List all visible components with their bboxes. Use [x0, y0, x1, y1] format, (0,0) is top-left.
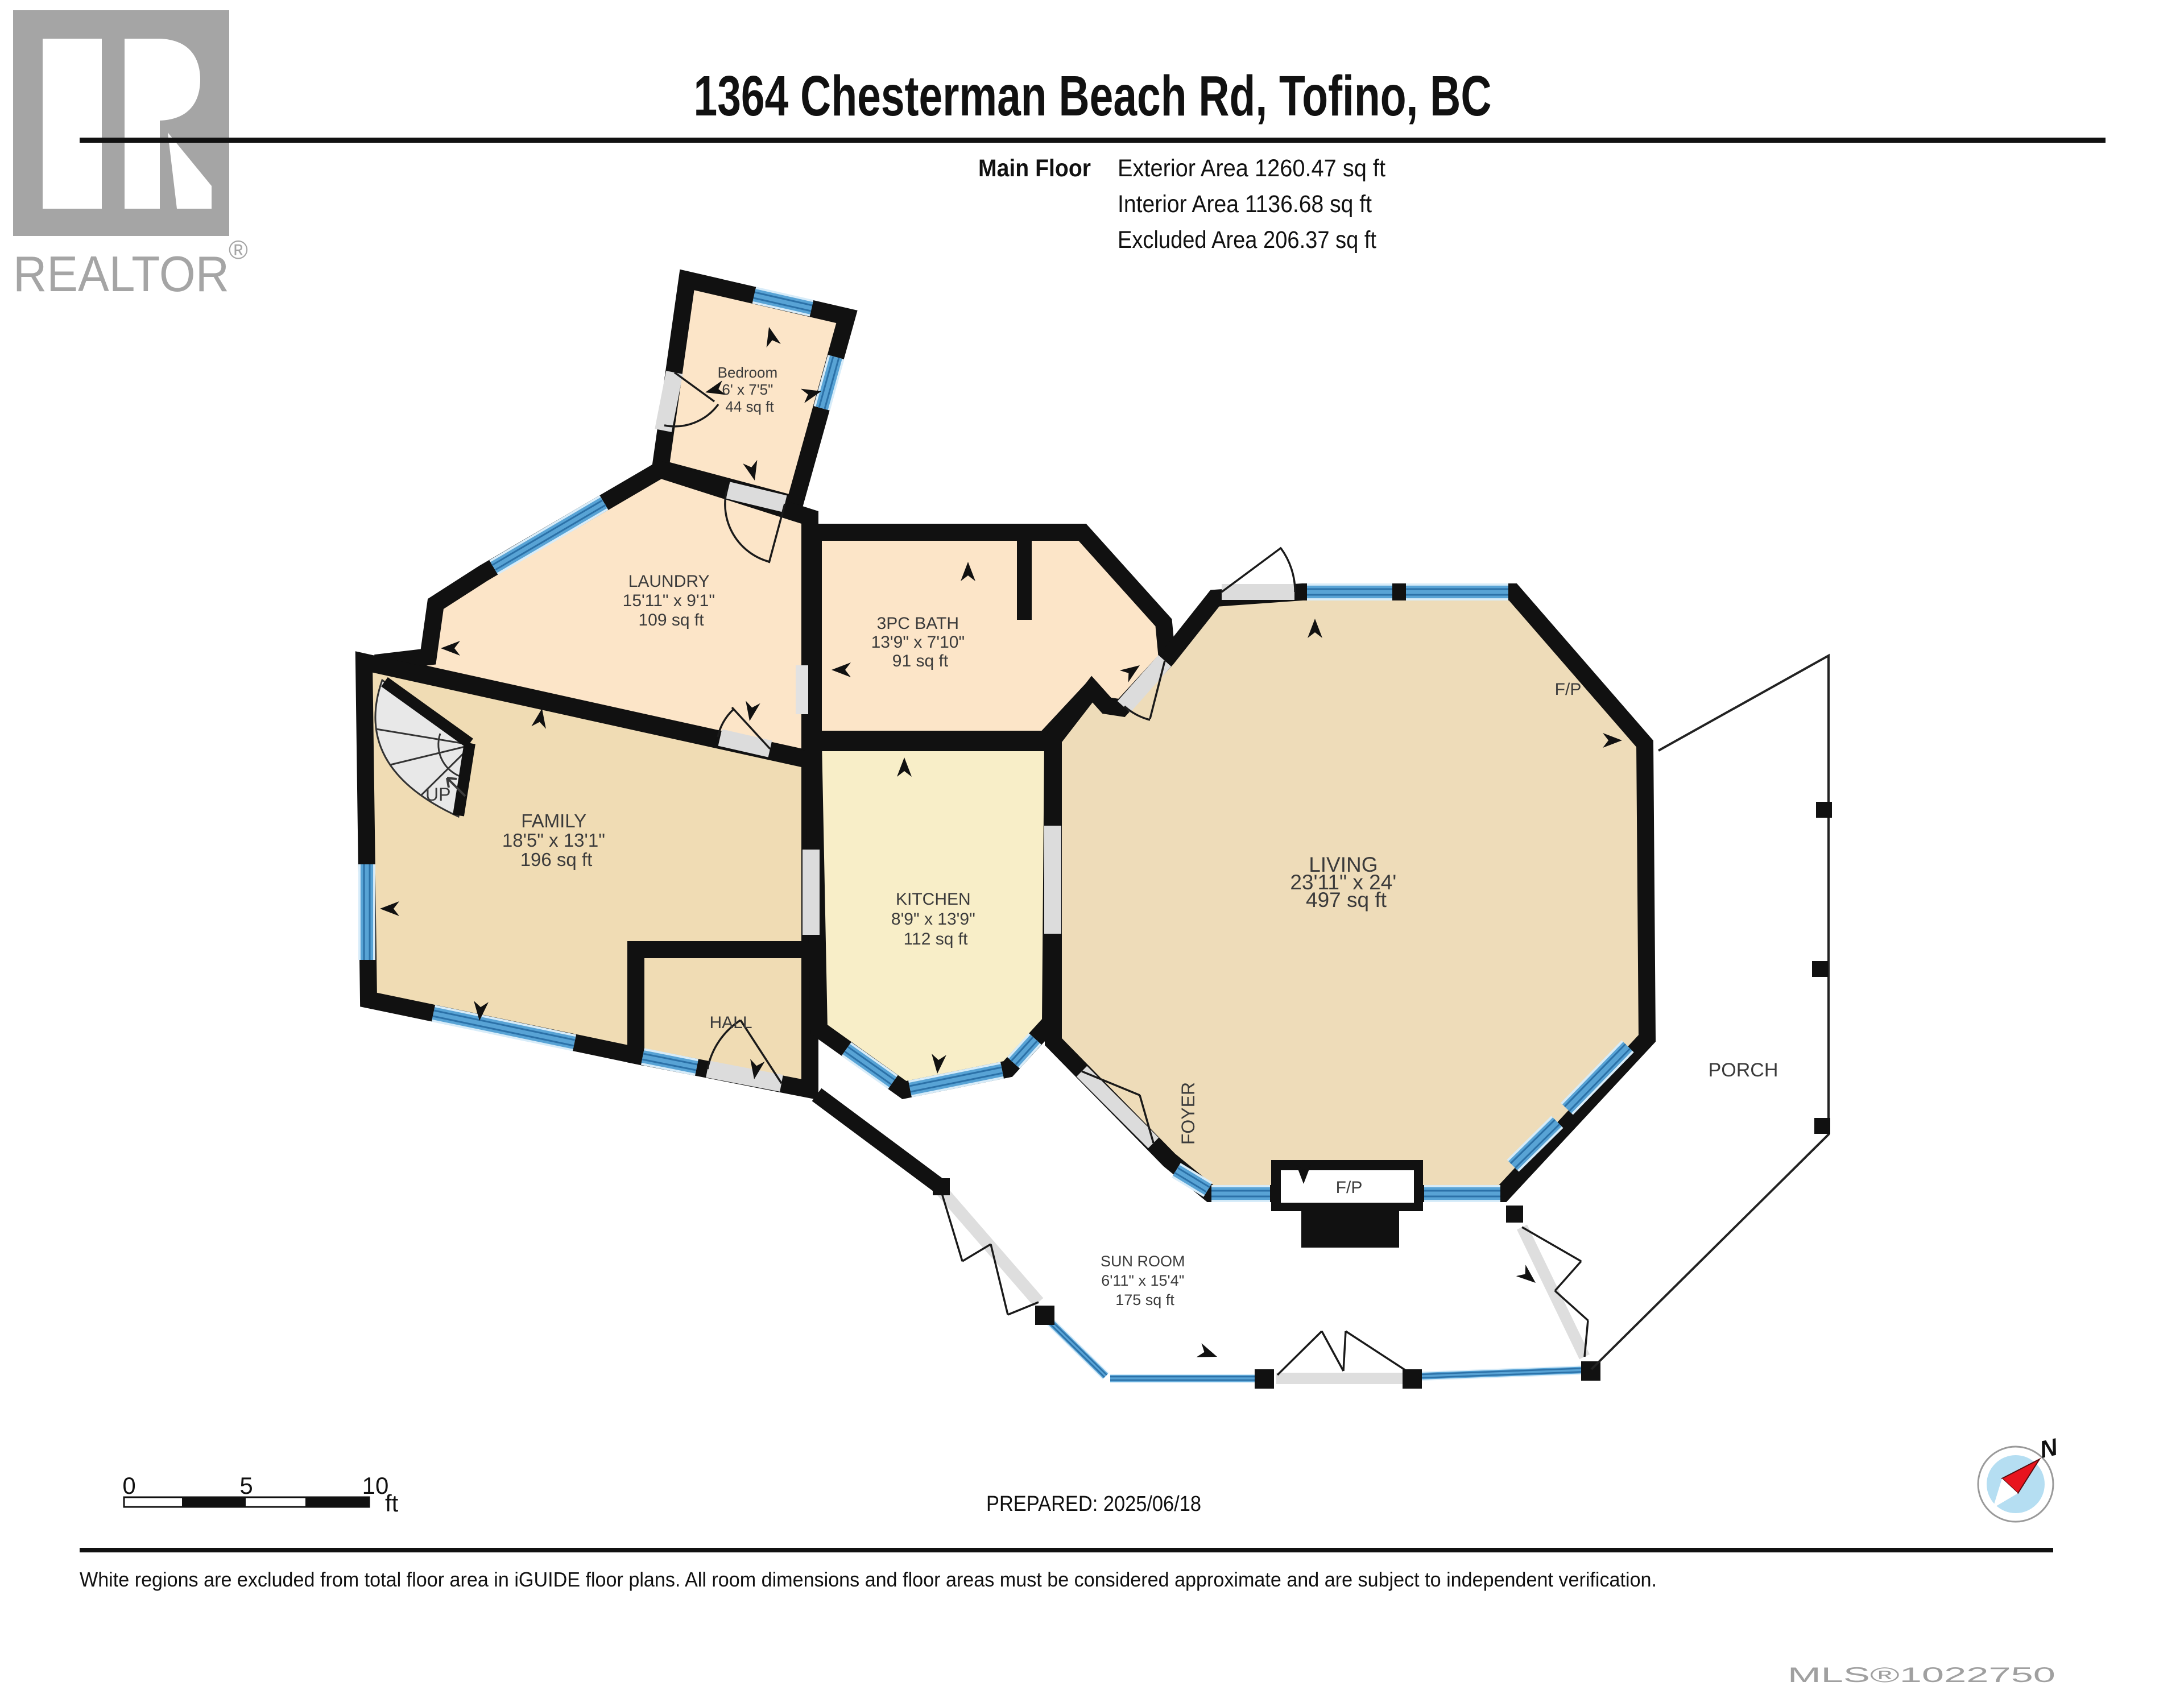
svg-text:MLS®1022750: MLS®1022750	[1788, 1663, 2055, 1687]
svg-text:®: ®	[229, 235, 248, 264]
svg-text:SUN ROOM 6'11" x 15'4" 175 sq: SUN ROOM 6'11" x 15'4" 175 sq ft	[1101, 1253, 1189, 1308]
svg-text:KITCHEN 8'9" x 13'9" 112 sq ft: KITCHEN 8'9" x 13'9" 112 sq ft	[891, 890, 980, 948]
svg-text:F/P: F/P	[1555, 680, 1582, 699]
svg-text:FOYER: FOYER	[1178, 1082, 1198, 1145]
svg-text:HALL: HALL	[709, 1013, 752, 1032]
svg-text:5: 5	[239, 1472, 253, 1499]
svg-text:PORCH: PORCH	[1709, 1059, 1778, 1081]
svg-text:Exterior Area 1260.47 sq ft: Exterior Area 1260.47 sq ft	[1118, 155, 1385, 182]
svg-text:White regions are excluded fro: White regions are excluded from total fl…	[80, 1568, 1657, 1591]
svg-text:PREPARED: 2025/06/18: PREPARED: 2025/06/18	[986, 1492, 1201, 1516]
svg-text:Interior Area 1136.68 sq ft: Interior Area 1136.68 sq ft	[1118, 190, 1372, 218]
svg-text:Main Floor: Main Floor	[978, 155, 1091, 182]
svg-text:REALTOR: REALTOR	[13, 246, 229, 302]
svg-text:F/P: F/P	[1336, 1178, 1363, 1197]
svg-text:Excluded Area 206.37 sq ft: Excluded Area 206.37 sq ft	[1118, 226, 1376, 254]
svg-text:0: 0	[122, 1472, 135, 1499]
svg-text:1364 Chesterman Beach Rd, Tofi: 1364 Chesterman Beach Rd, Tofino, BC	[694, 64, 1492, 128]
svg-text:UP: UP	[425, 784, 450, 805]
svg-text:Bedroom 6' x 7'5" 44 sq ft: Bedroom 6' x 7'5" 44 sq ft	[718, 364, 782, 415]
svg-text:ft: ft	[385, 1490, 399, 1517]
